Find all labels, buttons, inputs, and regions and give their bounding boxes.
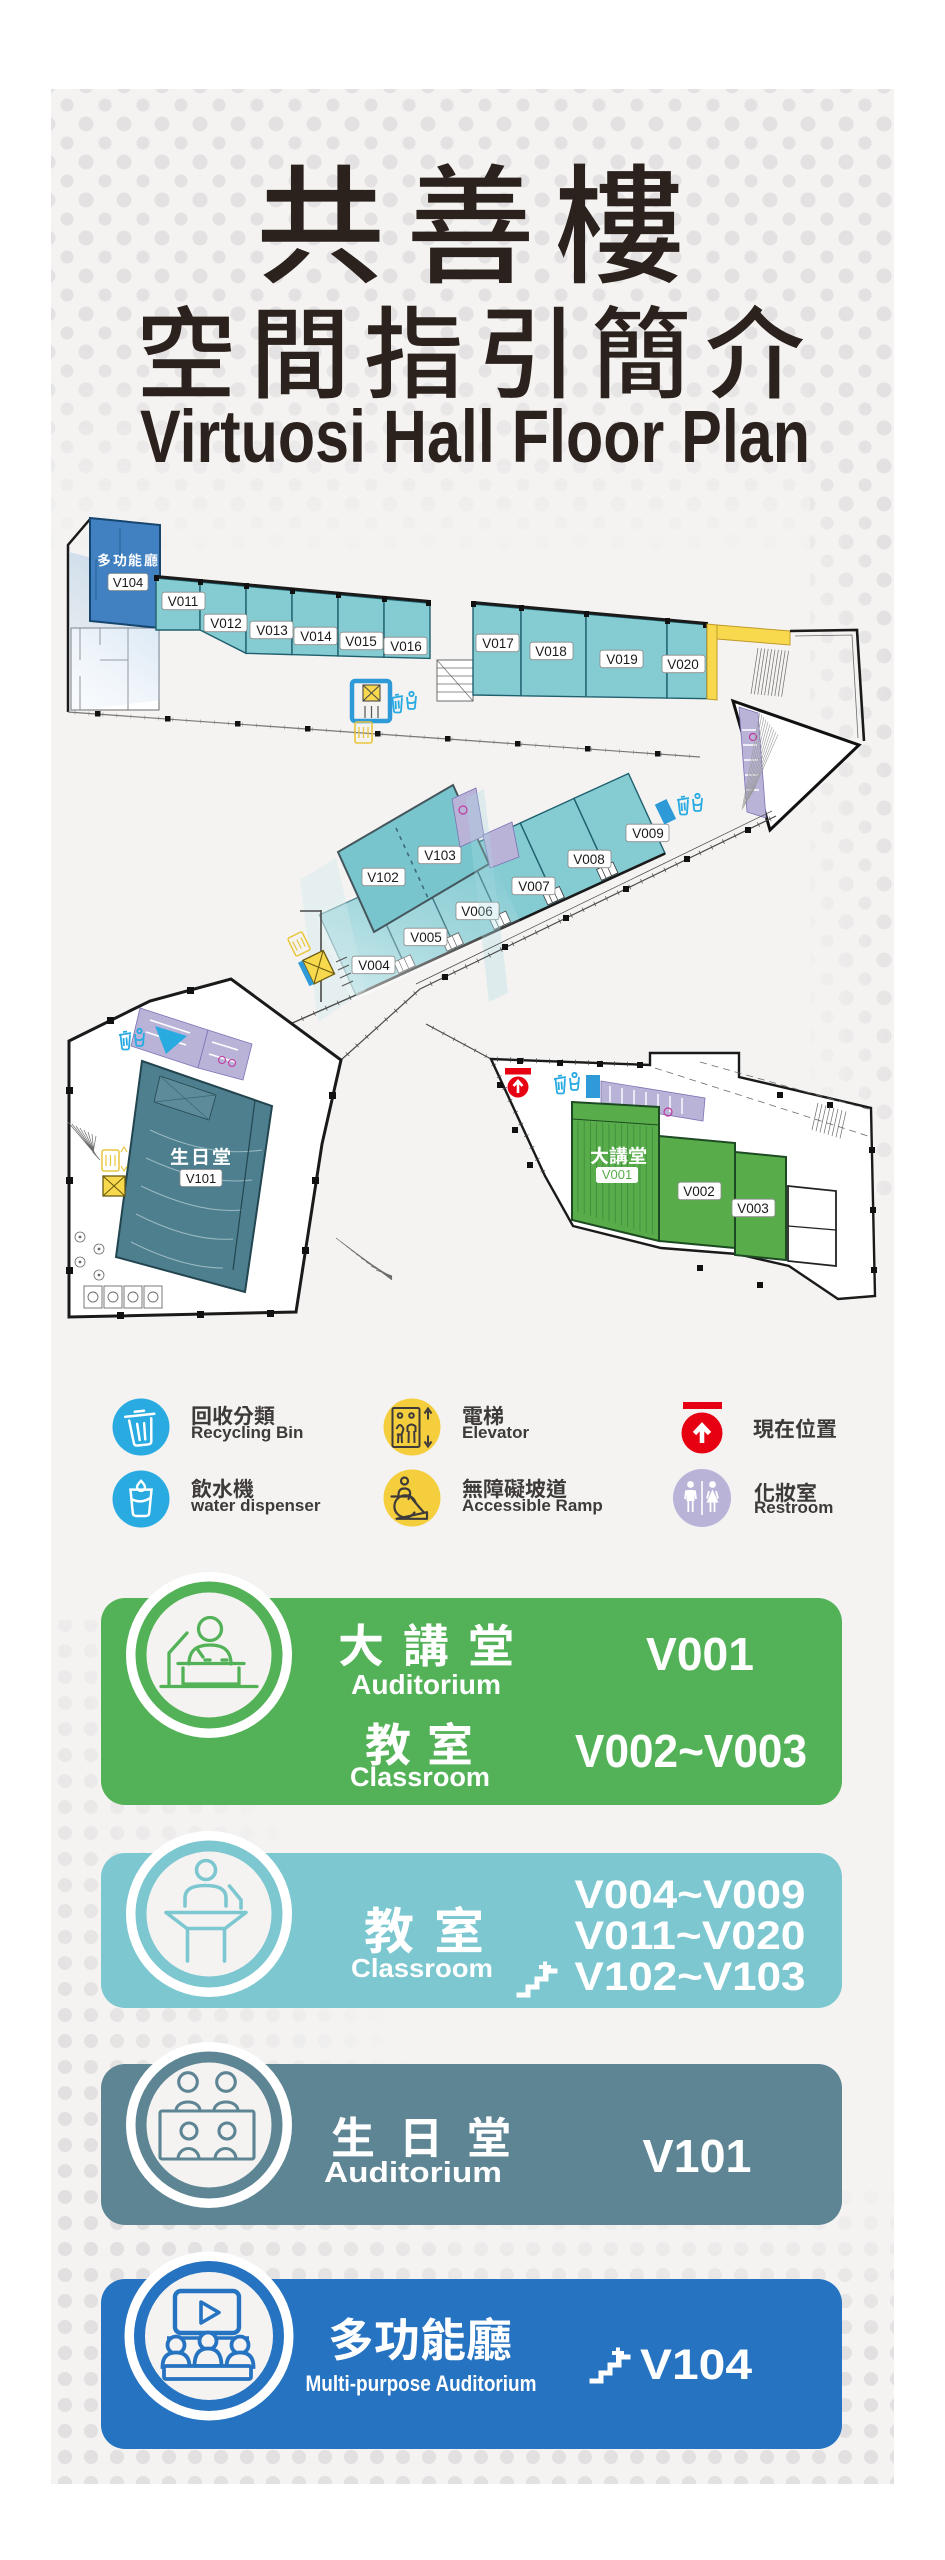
- svg-text:V104: V104: [640, 2341, 752, 2389]
- svg-text:V101: V101: [643, 2130, 752, 2182]
- svg-text:V005: V005: [410, 930, 442, 945]
- svg-text:V102: V102: [367, 870, 399, 885]
- svg-text:V103: V103: [424, 848, 456, 863]
- svg-text:V014: V014: [300, 629, 332, 644]
- svg-text:water dispenser: water dispenser: [190, 1496, 321, 1515]
- svg-text:V003: V003: [737, 1201, 769, 1216]
- svg-text:V011: V011: [168, 594, 199, 609]
- svg-text:Auditorium: Auditorium: [324, 2157, 502, 2189]
- svg-text:Recycling Bin: Recycling Bin: [191, 1423, 303, 1442]
- svg-text:V017: V017: [482, 636, 514, 651]
- svg-text:Virtuosi Hall Floor Plan: Virtuosi Hall Floor Plan: [140, 395, 810, 478]
- svg-text:V018: V018: [535, 644, 567, 659]
- svg-text:V019: V019: [606, 652, 638, 667]
- svg-text:V104: V104: [113, 575, 143, 590]
- svg-text:Restroom: Restroom: [754, 1498, 833, 1517]
- svg-text:Elevator: Elevator: [462, 1423, 529, 1442]
- svg-text:V009: V009: [632, 826, 664, 841]
- svg-text:V015: V015: [345, 634, 377, 649]
- svg-text:V002~V003: V002~V003: [575, 1725, 807, 1777]
- svg-text:V002: V002: [683, 1184, 715, 1199]
- svg-text:V101: V101: [186, 1171, 216, 1186]
- svg-text:V001: V001: [646, 1628, 754, 1680]
- svg-text:V007: V007: [518, 879, 550, 894]
- svg-text:V011~V020: V011~V020: [575, 1914, 806, 1958]
- svg-text:V004: V004: [358, 958, 390, 973]
- svg-text:V016: V016: [390, 639, 422, 654]
- svg-text:V102~V103: V102~V103: [575, 1955, 806, 1999]
- svg-text:Accessible Ramp: Accessible Ramp: [462, 1496, 603, 1515]
- svg-text:V008: V008: [573, 852, 605, 867]
- svg-text:V001: V001: [602, 1167, 632, 1182]
- svg-text:V012: V012: [210, 616, 242, 631]
- svg-text:Auditorium: Auditorium: [351, 1669, 501, 1700]
- svg-text:V020: V020: [667, 657, 699, 672]
- svg-text:Classroom: Classroom: [350, 1762, 490, 1792]
- svg-text:V013: V013: [256, 623, 288, 638]
- svg-text:Multi-purpose Auditorium: Multi-purpose Auditorium: [306, 2371, 537, 2396]
- svg-text:V004~V009: V004~V009: [575, 1873, 806, 1917]
- svg-text:Classroom: Classroom: [351, 1953, 493, 1983]
